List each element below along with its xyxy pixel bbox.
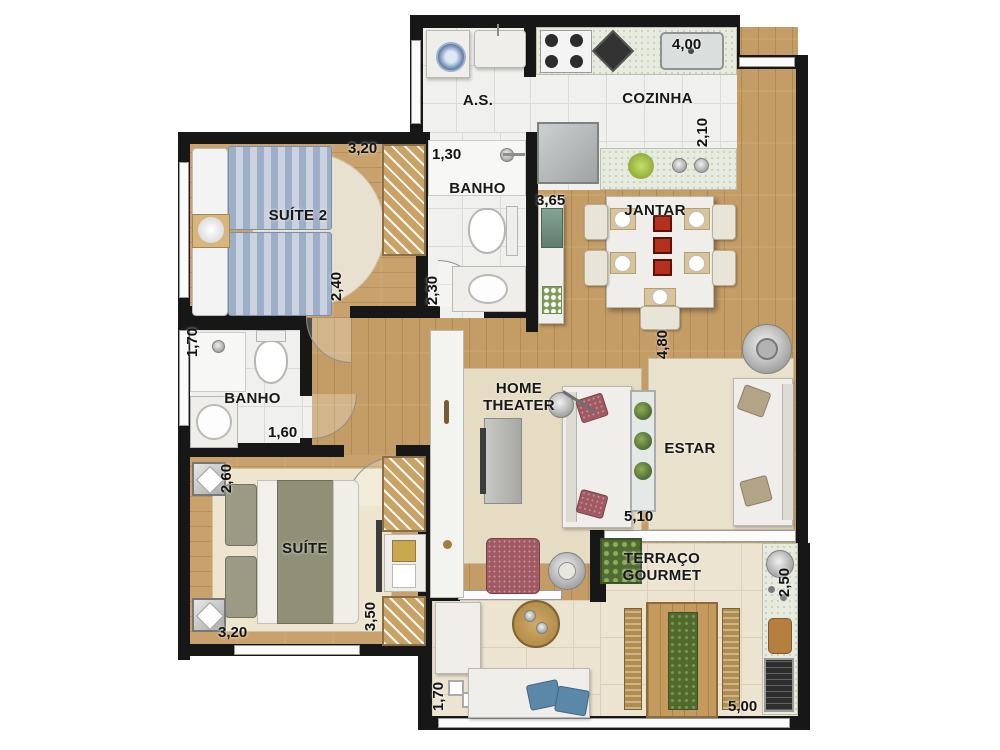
dining-chair	[584, 250, 608, 286]
room-label-jantar: JANTAR	[600, 202, 710, 219]
tray-inner-icon	[756, 338, 778, 360]
terrace-table-runner-plants	[668, 612, 698, 710]
refrigerator	[537, 122, 599, 184]
bath1-sink	[468, 274, 508, 304]
blue-pillow	[554, 685, 590, 716]
dim-cozinha-top: 4,00	[672, 36, 701, 53]
dining-chair	[640, 306, 680, 330]
floor-plan: A.S. COZINHA SUÍTE 2 BANHO JANTAR BANHO …	[0, 0, 1000, 750]
dim-terraco-bottom: 5,00	[728, 698, 757, 715]
dim-suite-right: 3,50	[362, 602, 379, 631]
room-label-estar: ESTAR	[640, 440, 740, 457]
room-label-banho2: BANHO	[210, 390, 295, 407]
dim-banho1-top: 1,30	[432, 146, 461, 163]
plate-icon	[652, 289, 668, 305]
room-label-home-theater: HOME THEATER	[463, 380, 575, 415]
terrace-armchair	[486, 538, 540, 594]
shelf-plant-icon	[634, 402, 652, 420]
wall-buffet-corner	[526, 306, 538, 332]
counter-knob-icon	[672, 158, 687, 173]
tv-screen	[480, 428, 486, 494]
terrace-lounge-chair	[435, 602, 481, 674]
dim-living-bottom: 5,10	[624, 508, 653, 525]
window-suite2	[179, 162, 189, 298]
dim-cozinha-right: 2,10	[694, 118, 711, 147]
table-runner-red	[653, 237, 672, 254]
plate-icon	[614, 255, 631, 272]
burner-icon	[570, 34, 583, 47]
dresser-box-icon	[392, 540, 416, 562]
dining-chair	[712, 204, 736, 240]
nightstand-lamp-icon	[198, 217, 224, 243]
suite-door-handle	[444, 400, 449, 424]
wall-right	[796, 55, 808, 547]
dim-living-left: 4,80	[654, 330, 671, 359]
burner-icon	[545, 55, 558, 68]
dim-terraco-right: 2,50	[776, 568, 793, 597]
room-label-banho1: BANHO	[435, 180, 520, 197]
shower-arm-icon	[503, 153, 525, 156]
suite-wardrobe-top	[382, 456, 426, 532]
laundry-tank	[474, 30, 526, 68]
sofa-backrest	[782, 384, 793, 520]
barbecue-grill	[764, 658, 794, 712]
dim-buffet-wall: 3,65	[536, 192, 565, 209]
burner-icon	[545, 34, 558, 47]
bed-pillow	[225, 556, 257, 618]
dim-terraco-left: 1,70	[430, 682, 447, 711]
dim-suite-bottom: 3,20	[218, 624, 247, 641]
bed-cover	[228, 232, 332, 316]
dining-chair	[712, 250, 736, 286]
room-label-suite: SUÍTE	[255, 540, 355, 557]
wall-suite2-top	[178, 132, 430, 144]
plate-icon	[688, 255, 705, 272]
hall-wall-panel	[430, 330, 464, 598]
bed-pillow	[225, 484, 257, 546]
room-label-terraco: TERRAÇO GOURMET	[598, 550, 726, 585]
fruit-bowl-icon	[628, 153, 654, 179]
dim-suite2-top: 3,20	[348, 140, 377, 157]
tv-rack	[484, 418, 522, 504]
dim-banho2-left: 1,70	[184, 328, 201, 357]
burner-icon	[570, 55, 583, 68]
dim-banho1-right: 2,30	[424, 276, 441, 305]
door-knob	[443, 540, 452, 549]
toilet-tank	[506, 206, 518, 256]
room-label-cozinha: COZINHA	[600, 90, 715, 107]
washing-machine-door	[436, 42, 466, 72]
window-service-area	[411, 40, 421, 124]
tank-faucet-icon	[497, 24, 499, 36]
room-label-suite2: SUÍTE 2	[243, 207, 353, 224]
table-runner-red	[653, 259, 672, 276]
wall-right-lower	[798, 543, 810, 730]
side-table-tray	[558, 562, 576, 580]
wall-bath1-bottom-a	[416, 306, 440, 318]
shelf-plant-icon	[634, 462, 652, 480]
toilet-tank	[256, 330, 286, 342]
toilet-bath1	[468, 208, 506, 254]
terrace-railing-glass	[438, 718, 790, 728]
room-label-as: A.S.	[440, 92, 516, 109]
cup-icon	[536, 622, 548, 634]
kitchen-peninsula-counter	[600, 148, 737, 190]
bath2-sink	[196, 404, 232, 440]
knob-icon	[768, 586, 775, 593]
window-suite	[234, 645, 360, 655]
dresser-cloth-icon	[392, 564, 416, 588]
toilet-bath2	[254, 340, 288, 384]
suite-wardrobe-bottom	[382, 596, 426, 646]
shower-head-icon	[212, 340, 225, 353]
terrace-bench-left	[624, 608, 642, 710]
dim-banho2-bottom: 1,60	[268, 424, 297, 441]
buffet-flowers-icon	[542, 286, 562, 314]
suite-tv-screen	[376, 520, 382, 592]
terrace-bench-right	[722, 608, 740, 710]
window-top-right	[739, 57, 795, 67]
cutting-board-icon	[768, 618, 792, 654]
dim-suite-left: 2,60	[218, 464, 235, 493]
buffet-tray-icon	[541, 208, 563, 248]
cup-icon	[524, 610, 536, 622]
suite2-wardrobe	[382, 144, 426, 256]
dim-suite2-right: 2,40	[328, 272, 345, 301]
counter-knob-icon	[694, 158, 709, 173]
